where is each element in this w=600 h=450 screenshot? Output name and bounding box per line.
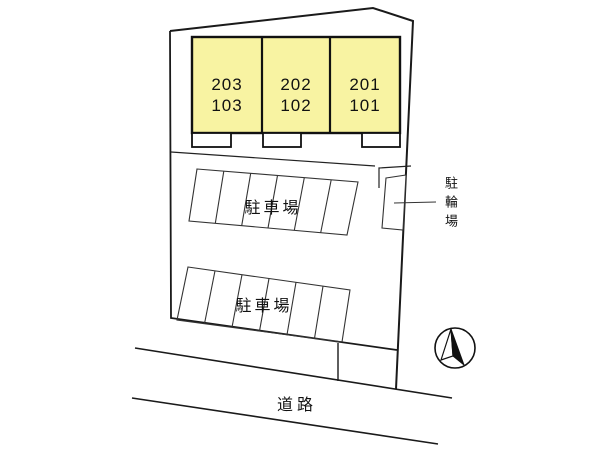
parking-lot-upper-label: 駐車場 [213, 194, 333, 218]
unit-lower-number: 103 [192, 95, 262, 116]
north-arrow-icon [435, 328, 475, 368]
unit-label-201-101: 201 101 [330, 74, 400, 116]
unit-label-202-102: 202 102 [262, 74, 330, 116]
parking-lot-lower-label: 駐車場 [204, 292, 324, 316]
road-label: 道路 [252, 391, 342, 415]
unit-lower-number: 102 [262, 95, 330, 116]
entrance-porch-2 [263, 133, 301, 147]
site-plan: 203 103 202 102 201 101 駐車場 駐車場 駐輪場 道路 [0, 0, 600, 450]
entrance-porch-1 [192, 133, 231, 147]
yard-divider-line [171, 152, 375, 166]
unit-upper-number: 201 [330, 74, 400, 95]
unit-label-203-103: 203 103 [192, 74, 262, 116]
unit-lower-number: 101 [330, 95, 400, 116]
bicycle-parking-label: 駐輪場 [441, 176, 460, 233]
unit-upper-number: 203 [192, 74, 262, 95]
entrance-porch-3 [362, 133, 400, 147]
site-plan-drawing [0, 0, 600, 450]
unit-upper-number: 202 [262, 74, 330, 95]
